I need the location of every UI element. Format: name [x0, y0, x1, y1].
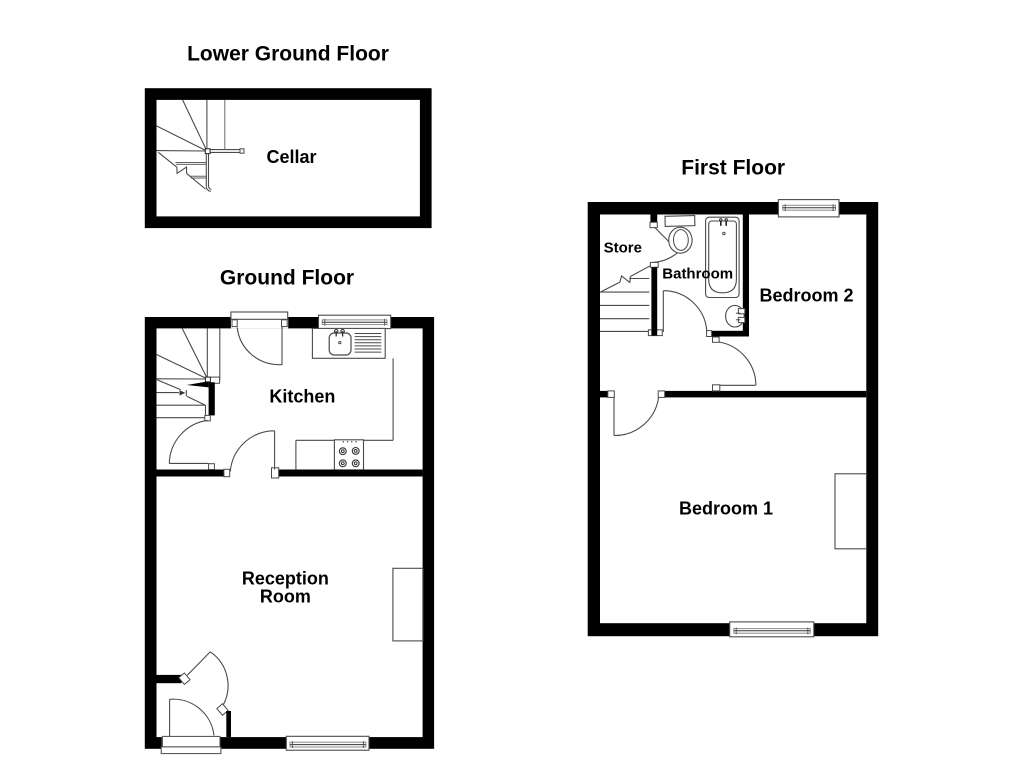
- svg-text:Kitchen: Kitchen: [269, 386, 335, 406]
- svg-text:First Floor: First Floor: [681, 157, 785, 180]
- svg-text:Bedroom 1: Bedroom 1: [679, 499, 773, 519]
- svg-text:Lower Ground Floor: Lower Ground Floor: [187, 43, 389, 66]
- svg-text:Bedroom 2: Bedroom 2: [759, 285, 853, 305]
- svg-text:Bathroom: Bathroom: [662, 266, 733, 283]
- svg-text:Ground Floor: Ground Floor: [220, 267, 354, 290]
- svg-text:Room: Room: [260, 587, 311, 607]
- svg-text:Reception: Reception: [242, 568, 329, 588]
- svg-text:Cellar: Cellar: [266, 147, 316, 167]
- svg-text:Store: Store: [604, 240, 642, 257]
